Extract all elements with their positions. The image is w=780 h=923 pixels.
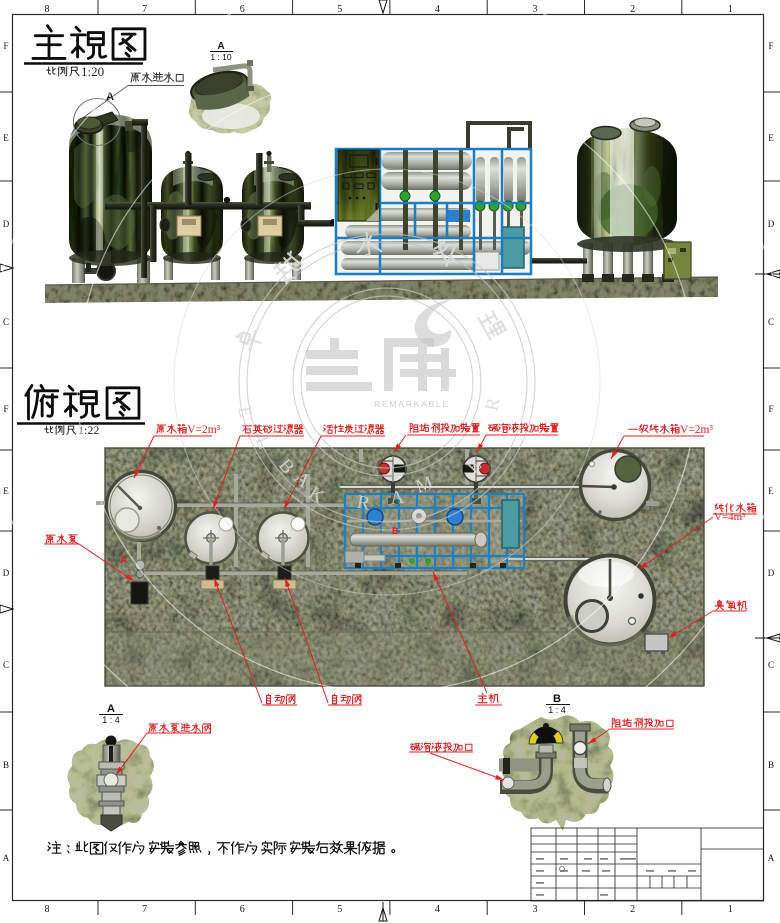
svg-text:V=2m³: V=2m³ — [187, 424, 220, 436]
svg-text:A: A — [107, 703, 115, 715]
svg-text:D: D — [768, 219, 775, 229]
svg-text:1: 1 — [728, 4, 733, 15]
svg-text:1 : 10: 1 : 10 — [210, 52, 232, 62]
svg-text:E: E — [3, 486, 9, 496]
svg-text:1 : 4: 1 : 4 — [102, 715, 120, 725]
svg-text:4: 4 — [435, 904, 440, 915]
svg-text:A: A — [3, 853, 10, 863]
svg-text:C: C — [768, 317, 774, 327]
svg-text:D: D — [3, 568, 10, 578]
svg-text:A: A — [389, 487, 405, 509]
svg-text:F: F — [3, 41, 8, 51]
svg-text:C: C — [3, 660, 9, 670]
svg-text:5: 5 — [337, 904, 342, 915]
svg-text:7: 7 — [142, 4, 147, 15]
svg-text:5: 5 — [337, 4, 342, 15]
svg-text:8: 8 — [45, 904, 50, 915]
svg-text:A: A — [768, 853, 775, 863]
svg-text:1: 1 — [728, 904, 733, 915]
svg-text:D: D — [768, 568, 775, 578]
svg-text:C: C — [768, 660, 774, 670]
svg-text:2: 2 — [630, 4, 635, 15]
svg-text:REMARKABLE: REMARKABLE — [374, 399, 450, 409]
svg-text:B: B — [768, 760, 774, 770]
svg-text:B: B — [553, 693, 561, 705]
svg-text:3: 3 — [533, 904, 538, 915]
svg-text:2: 2 — [630, 904, 635, 915]
svg-text:V=2m³: V=2m³ — [680, 424, 713, 436]
svg-text:B: B — [392, 526, 399, 536]
svg-text:C: C — [3, 317, 9, 327]
svg-text:D: D — [3, 219, 10, 229]
svg-text:E: E — [768, 133, 774, 143]
svg-text:4: 4 — [435, 4, 440, 15]
svg-text:A: A — [120, 555, 127, 566]
svg-text:E: E — [3, 133, 9, 143]
svg-text:7: 7 — [142, 904, 147, 915]
svg-text:F: F — [3, 404, 8, 414]
svg-text:F: F — [768, 41, 773, 51]
svg-text:6: 6 — [240, 904, 245, 915]
svg-text:A: A — [217, 41, 224, 52]
svg-text:B: B — [3, 760, 9, 770]
svg-text:1:20: 1:20 — [81, 64, 104, 79]
svg-text:F: F — [768, 404, 773, 414]
svg-text:1 : 4: 1 : 4 — [548, 705, 566, 715]
svg-text:8: 8 — [45, 4, 50, 15]
svg-text:V=4m³: V=4m³ — [714, 511, 746, 523]
